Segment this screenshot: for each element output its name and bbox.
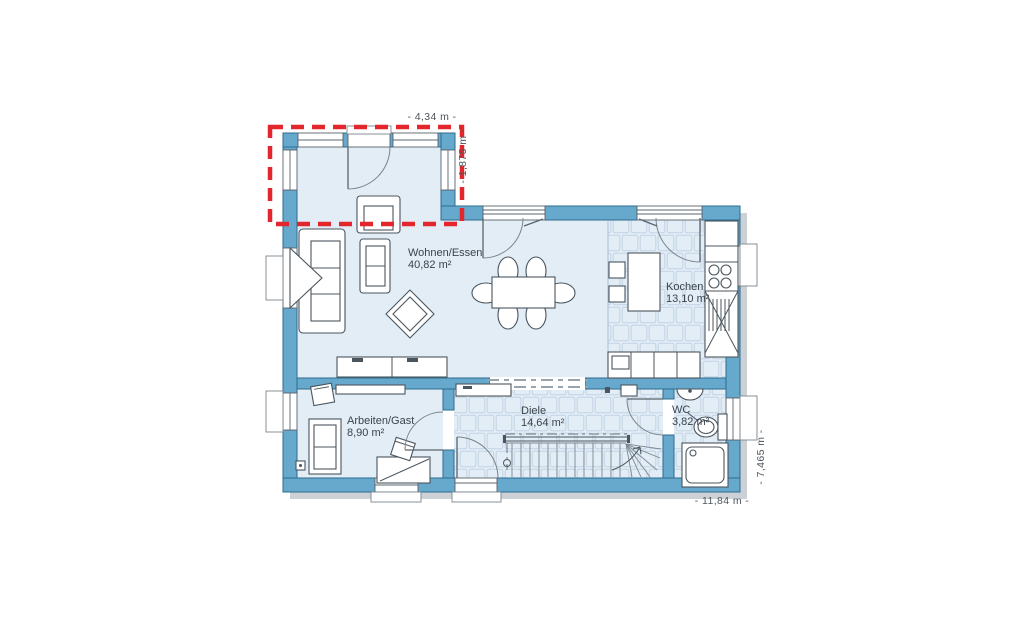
wall-extension-right <box>441 133 455 150</box>
wall-arbeiten-diele <box>443 389 454 410</box>
kitchen-counter-right <box>705 221 738 357</box>
sill-kitchen-right <box>740 244 757 286</box>
hall-wardrobe <box>456 384 511 396</box>
shelf <box>336 385 405 394</box>
room-label-kochen: Kochen 13,10 m² <box>666 281 710 305</box>
hall-cabinet <box>621 385 637 396</box>
window-extension-left <box>283 150 297 190</box>
floor-plan-image: Wohnen/Essen 40,82 m² Kochen 13,10 m² Ar… <box>0 0 1024 622</box>
entrance-door-opening <box>455 478 497 492</box>
armchair-extension <box>357 196 400 233</box>
kitchen-counter-bottom <box>608 352 700 378</box>
daybed <box>309 419 341 474</box>
window-wc-right <box>726 398 740 440</box>
pillow <box>311 383 335 405</box>
sill-living-left <box>266 256 283 300</box>
wall-bottom <box>283 478 375 492</box>
kitchen-island <box>628 253 660 311</box>
sill-arbeiten-left <box>266 391 283 432</box>
dimension-top: - 4,34 m - <box>408 111 457 123</box>
terrace-door-kitchen <box>637 206 702 220</box>
window-extension-top-right <box>393 133 438 147</box>
armchair <box>360 239 390 293</box>
bar-stool <box>609 286 625 302</box>
dining-table <box>492 277 555 308</box>
sill-arbeiten-bottom <box>371 492 421 502</box>
shower <box>682 443 728 487</box>
kitchen-sink <box>612 356 629 369</box>
terrace-door-dining <box>483 206 545 220</box>
dimension-right: - 7,465 m - <box>755 429 767 484</box>
floor-plan-drawing: Wohnen/Essen 40,82 m² Kochen 13,10 m² Ar… <box>0 0 1024 622</box>
dimension-bottom: - 11,84 m - <box>695 495 749 507</box>
desk <box>377 457 430 483</box>
wall-diele-wc <box>663 389 674 399</box>
window-arbeiten-left <box>283 393 297 430</box>
wall-extension-top <box>283 133 298 147</box>
bar-stool <box>609 262 625 278</box>
wall-marker <box>605 387 610 393</box>
window-extension-top-left <box>298 133 343 147</box>
window-extension-right <box>441 150 455 190</box>
extension-door-opening <box>348 133 390 147</box>
sill-entrance <box>452 492 501 502</box>
dimension-extension-depth: - 1,875 m - <box>457 128 469 183</box>
sideboard <box>337 357 447 377</box>
heating-box <box>296 461 305 470</box>
